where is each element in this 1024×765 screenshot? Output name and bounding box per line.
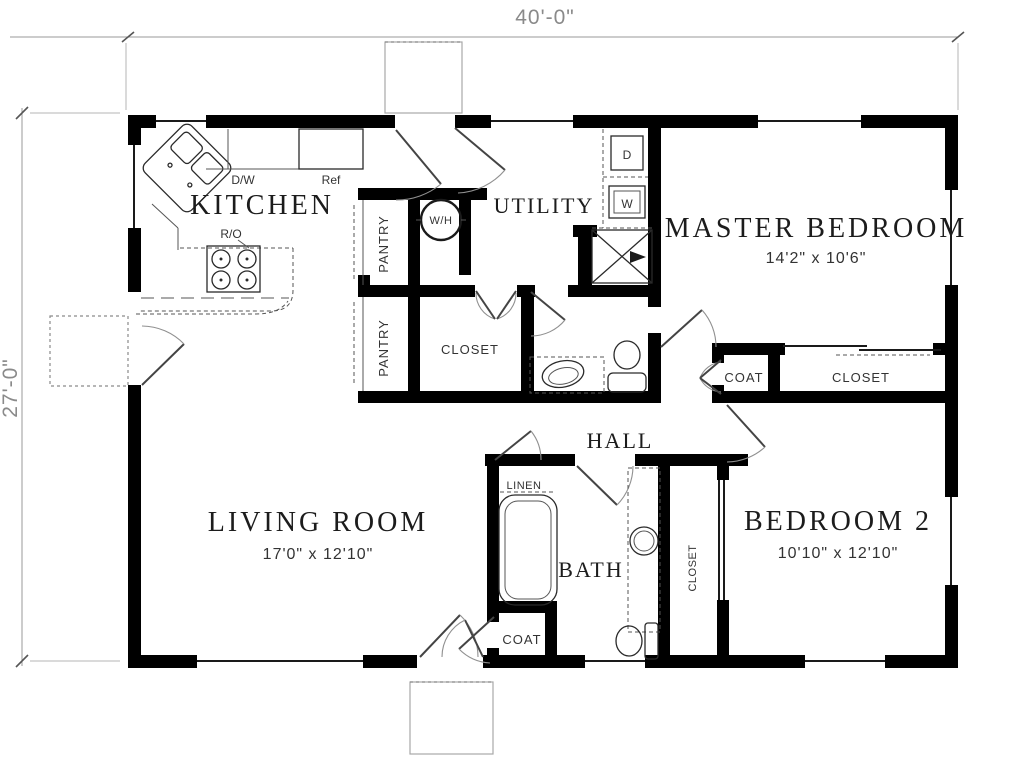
bath-label: BATH [558, 557, 623, 582]
wall-segment [363, 655, 417, 668]
wall-segment [635, 454, 748, 466]
wall-segment [128, 228, 141, 292]
powder-room-fixtures [530, 341, 646, 393]
range-oven-stove [207, 246, 260, 292]
wall-segment [483, 655, 585, 668]
wall-segment [487, 601, 557, 613]
floor-plan: 40'-0" 27'-0" [0, 0, 1024, 765]
side-stoop [50, 316, 128, 386]
wall-segment [648, 128, 661, 307]
bedroom2-door [727, 405, 765, 462]
wall-segment [487, 648, 499, 655]
bedroom2-size: 10'10" x 12'10" [778, 545, 899, 562]
wall-segment [712, 391, 945, 403]
water-heater-label: W/H [430, 215, 453, 227]
bedroom2-label: BEDROOM 2 [744, 506, 932, 537]
bath-door [577, 466, 633, 505]
wall-segment [568, 285, 660, 297]
wall-segment [459, 196, 471, 275]
wall-segment [717, 454, 729, 480]
wall-segment [545, 613, 557, 655]
eating-bar [136, 301, 288, 314]
wall-segment [517, 285, 535, 297]
master-bedroom-size: 14'2" x 10'6" [766, 250, 867, 267]
label-leader [238, 240, 249, 248]
utility-label: UTILITY [494, 193, 595, 218]
kitchen-label: KITCHEN [190, 190, 334, 221]
dryer-label: D [623, 148, 632, 162]
sink [540, 357, 586, 391]
wall-segment [712, 343, 724, 363]
master-bedroom-door [661, 310, 716, 347]
sink [630, 527, 658, 555]
wall-segment [573, 115, 758, 128]
peninsula-counter [140, 248, 293, 311]
wall-segment [645, 655, 805, 668]
wall-segment [128, 115, 141, 145]
front-porch [410, 682, 493, 754]
wall-segment [658, 454, 670, 655]
wall-segment [128, 385, 141, 668]
wall-segment [717, 600, 729, 655]
hall-closet-bifold-door [476, 291, 516, 319]
wall-segment [648, 333, 661, 403]
wall-segment [945, 285, 958, 497]
entry-coat-label: COAT [502, 632, 541, 647]
wall-segment [206, 115, 395, 128]
wall-segment [885, 655, 958, 668]
hall-label: HALL [587, 428, 654, 453]
living-room-label: LIVING ROOM [208, 507, 428, 538]
wall-segment [945, 115, 958, 190]
vanity-counter [530, 357, 604, 393]
width-dimension-label: 40'-0" [515, 6, 575, 29]
refrigerator [299, 129, 363, 169]
wall-segment [455, 115, 491, 128]
dishwasher-label: D/W [231, 173, 255, 187]
wall-segment [768, 355, 780, 391]
master-bedroom-label: MASTER BEDROOM [665, 213, 968, 244]
back-stoop [385, 42, 462, 113]
bedroom2-closet-label: CLOSET [687, 544, 699, 591]
pantry2-label: PANTRY [376, 319, 391, 377]
washer-label: W [621, 197, 633, 211]
living-room-size: 17'0" x 12'10" [263, 546, 374, 563]
wall-segment [861, 115, 958, 128]
interior-walls [358, 128, 945, 655]
wall-segment [358, 391, 660, 403]
wall-segment [521, 297, 534, 391]
side-door [142, 326, 184, 385]
powder-room-door [531, 292, 565, 336]
range-oven-label: R/O [220, 227, 241, 241]
cabinet-edge [152, 204, 178, 228]
floor-plan-page: 40'-0" 27'-0" [0, 0, 1024, 765]
wall-segment [128, 655, 197, 668]
bathtub [499, 495, 557, 605]
pantry1-label: PANTRY [376, 215, 391, 273]
wall-segment [358, 275, 370, 297]
linen-label: LINEN [507, 480, 542, 492]
refrigerator-label: Ref [322, 173, 341, 187]
master-closet-label: CLOSET [832, 370, 890, 385]
height-dimension-label: 27'-0" [0, 358, 22, 418]
hall-closet-label: CLOSET [441, 342, 499, 357]
furnace [592, 230, 652, 283]
coat-hall-label: COAT [724, 370, 763, 385]
dimension-annotations: 40'-0" 27'-0" [0, 6, 964, 667]
toilet [608, 341, 646, 392]
wall-segment [487, 454, 499, 622]
toilet [616, 623, 658, 659]
